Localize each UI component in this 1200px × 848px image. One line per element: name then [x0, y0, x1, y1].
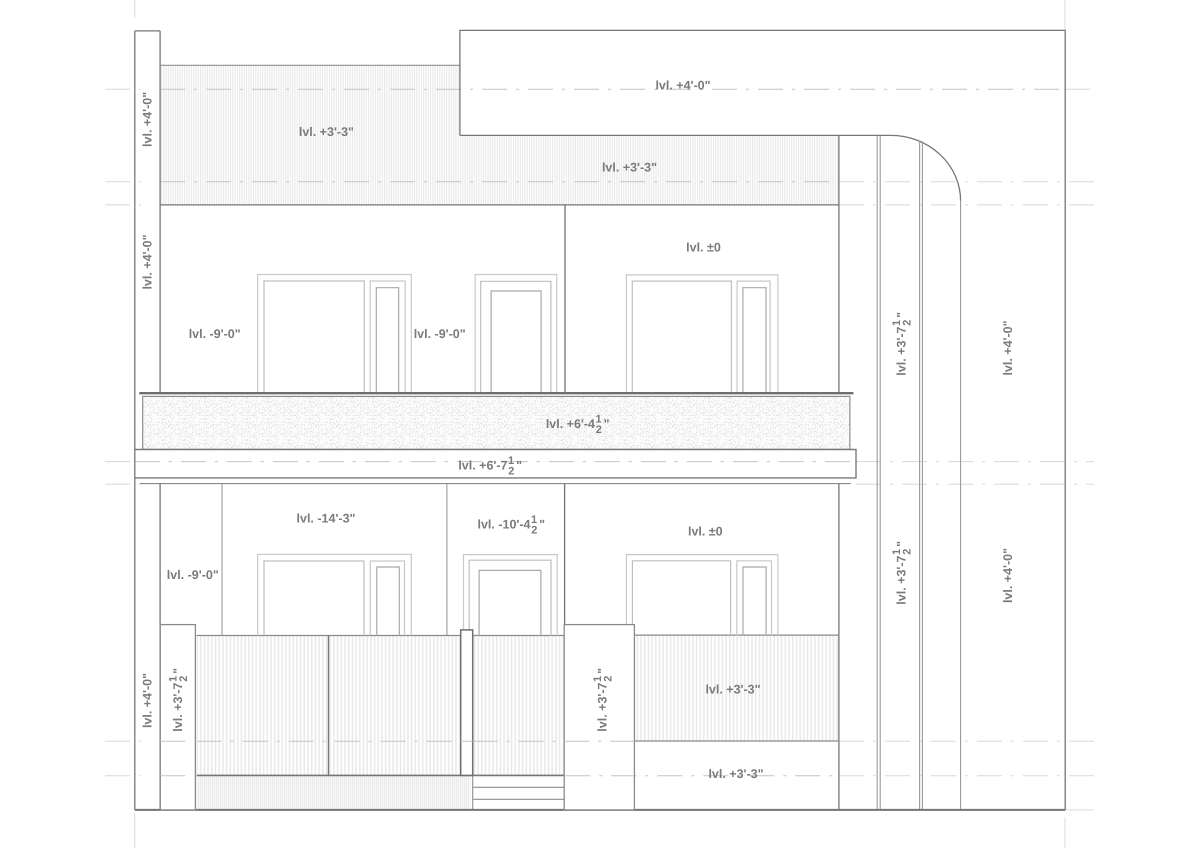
svg-text:lvl. +6'-7: lvl. +6'-7	[458, 459, 507, 473]
svg-text:lvl. ±0: lvl. ±0	[686, 241, 721, 255]
svg-text:lvl. -9'-0": lvl. -9'-0"	[414, 327, 466, 341]
svg-text:lvl. +4'-0": lvl. +4'-0"	[1001, 548, 1015, 603]
svg-text:2: 2	[178, 676, 190, 682]
svg-text:lvl. +3'-7: lvl. +3'-7	[895, 326, 909, 375]
svg-text:lvl. +3'-3": lvl. +3'-3"	[705, 682, 760, 696]
svg-text:lvl. +6'-4: lvl. +6'-4	[546, 417, 595, 431]
svg-text:": "	[895, 312, 909, 318]
svg-text:": "	[596, 668, 610, 674]
svg-text:lvl. +4'-0": lvl. +4'-0"	[1001, 320, 1015, 375]
svg-text:": "	[171, 668, 185, 674]
svg-text:": "	[539, 518, 545, 532]
svg-text:2: 2	[902, 549, 914, 555]
svg-text:lvl. -10'-4: lvl. -10'-4	[478, 518, 531, 532]
svg-text:lvl. ±0: lvl. ±0	[688, 524, 723, 538]
svg-text:lvl. +3'-3": lvl. +3'-3"	[602, 161, 657, 175]
svg-text:lvl. +3'-7: lvl. +3'-7	[596, 682, 610, 731]
svg-text:lvl. +4'-0": lvl. +4'-0"	[141, 673, 155, 728]
svg-text:lvl. +3'-3": lvl. +3'-3"	[299, 125, 354, 139]
svg-text:": "	[516, 459, 522, 473]
svg-text:2: 2	[596, 424, 602, 436]
svg-text:2: 2	[508, 466, 514, 478]
svg-text:lvl. +4'-0": lvl. +4'-0"	[141, 92, 155, 147]
svg-text:": "	[604, 417, 610, 431]
svg-text:lvl. +3'-3": lvl. +3'-3"	[708, 767, 763, 781]
svg-text:lvl. +4'-0": lvl. +4'-0"	[141, 234, 155, 289]
svg-text:lvl. +4'-0": lvl. +4'-0"	[655, 78, 710, 92]
svg-text:lvl. -14'-3": lvl. -14'-3"	[297, 511, 356, 525]
svg-text:lvl. +3'-7: lvl. +3'-7	[171, 682, 185, 731]
svg-text:lvl. +3'-7: lvl. +3'-7	[895, 555, 909, 604]
svg-text:2: 2	[531, 525, 537, 537]
svg-text:lvl. -9'-0": lvl. -9'-0"	[167, 568, 219, 582]
svg-text:2: 2	[902, 320, 914, 326]
svg-text:": "	[895, 541, 909, 547]
svg-text:2: 2	[603, 676, 615, 682]
svg-text:lvl. -9'-0": lvl. -9'-0"	[189, 327, 241, 341]
